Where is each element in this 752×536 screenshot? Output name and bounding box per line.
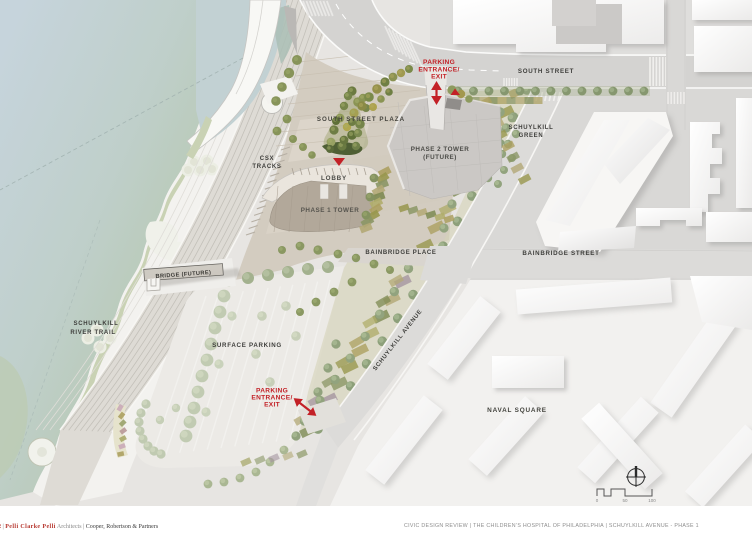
svg-text:PHASE 2 TOWER: PHASE 2 TOWER <box>411 146 470 153</box>
svg-text:GREEN: GREEN <box>519 133 544 139</box>
svg-text:50: 50 <box>622 498 628 503</box>
svg-text:LOBBY: LOBBY <box>321 175 347 182</box>
svg-text:BAINBRIDGE STREET: BAINBRIDGE STREET <box>522 250 599 257</box>
svg-text:PARKING: PARKING <box>256 388 288 395</box>
svg-text:EXIT: EXIT <box>431 74 447 81</box>
svg-text:CSX: CSX <box>260 156 274 162</box>
svg-text:(FUTURE): (FUTURE) <box>423 154 457 161</box>
svg-text:ENTRANCE/: ENTRANCE/ <box>418 67 459 74</box>
svg-text:PARKING: PARKING <box>423 59 455 66</box>
svg-text:BAINBRIDGE PLACE: BAINBRIDGE PLACE <box>365 250 436 256</box>
svg-text:100: 100 <box>648 498 656 503</box>
svg-text:2 | Pelli Clarke Pelli Archite: 2 | Pelli Clarke Pelli Architects | Coop… <box>0 524 159 530</box>
svg-text:PHASE 1 TOWER: PHASE 1 TOWER <box>301 207 360 214</box>
svg-text:ENTRANCE/: ENTRANCE/ <box>251 395 292 402</box>
svg-text:CIVIC DESIGN REVIEW | THE CHIL: CIVIC DESIGN REVIEW | THE CHILDREN’S HOS… <box>404 523 699 529</box>
svg-text:SCHUYLKILL: SCHUYLKILL <box>74 321 119 327</box>
svg-text:NAVAL SQUARE: NAVAL SQUARE <box>487 407 547 414</box>
svg-text:SCHUYLKILL: SCHUYLKILL <box>509 125 554 131</box>
svg-text:SOUTH STREET: SOUTH STREET <box>518 68 574 75</box>
svg-text:TRACKS: TRACKS <box>252 164 281 170</box>
svg-text:SOUTH STREET PLAZA: SOUTH STREET PLAZA <box>317 116 405 123</box>
svg-text:SURFACE PARKING: SURFACE PARKING <box>212 342 282 349</box>
svg-text:RIVER TRAIL: RIVER TRAIL <box>70 330 115 336</box>
svg-text:EXIT: EXIT <box>264 402 280 409</box>
